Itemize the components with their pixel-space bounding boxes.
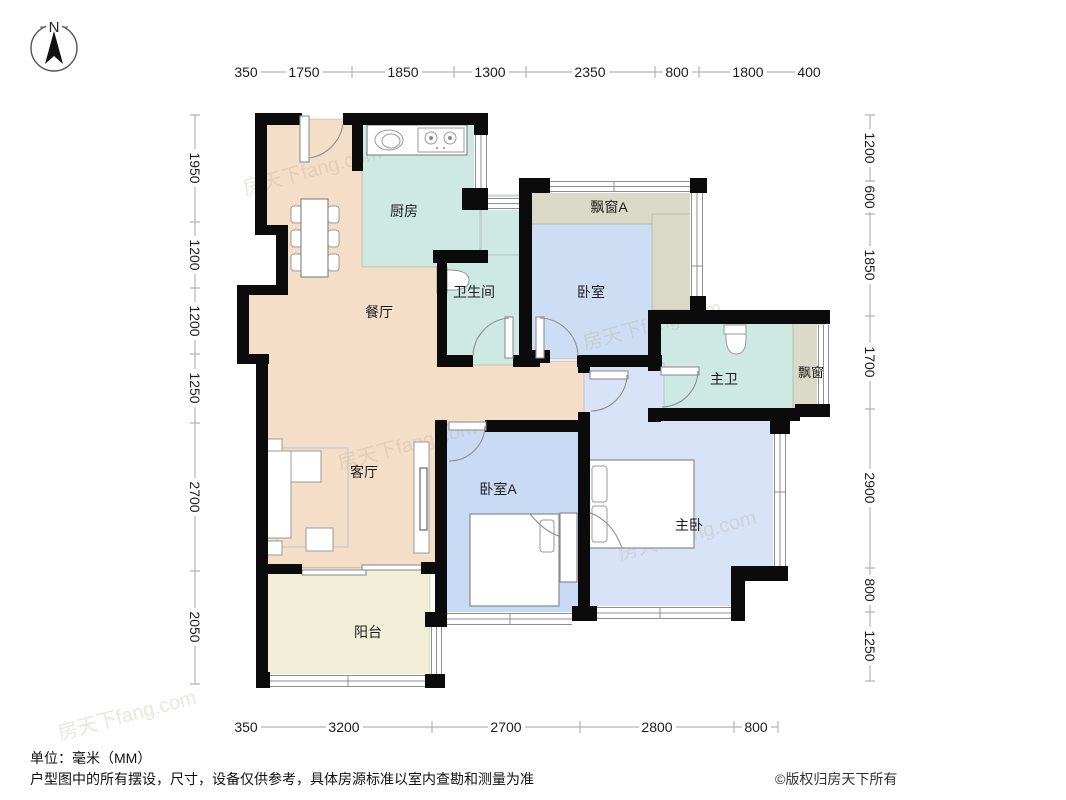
dim-bottom-4: 800 — [744, 719, 768, 735]
bedroom-a-bed — [470, 514, 559, 606]
dim-bottom-3: 2800 — [641, 719, 672, 735]
dim-left-3: 1250 — [187, 372, 203, 403]
label-dining: 餐厅 — [365, 304, 393, 320]
dim-top-1: 1750 — [288, 64, 319, 80]
dim-right-3: 1700 — [862, 346, 878, 377]
dim-right-6: 1250 — [862, 630, 878, 661]
kitchen-counter — [367, 125, 467, 155]
disclaimer: 户型图中的所有摆设，尺寸，设备仅供参考，具体房源标准以室内查勘和测量为准 — [30, 771, 534, 787]
master-bottom-window — [597, 606, 731, 620]
room-balcony-fill — [262, 568, 430, 680]
dim-left-5: 2050 — [187, 611, 203, 642]
baywindow-a-side-window — [690, 193, 704, 298]
compass: N — [31, 18, 77, 71]
label-bedroom-a: 卧室A — [479, 481, 517, 497]
floorplan-page: 房天下fang.com 房天下fang.com 房天下fang.com 房天下f… — [0, 0, 1066, 800]
balcony-right-window — [430, 627, 443, 674]
label-balcony: 阳台 — [354, 624, 382, 640]
dim-top-0: 350 — [234, 64, 258, 80]
dimension-right: 1200 600 1850 1700 2900 800 1250 — [862, 115, 878, 681]
label-bay: 飘窗 — [798, 365, 824, 380]
tv-cabinet — [414, 442, 429, 553]
dim-top-6: 1800 — [732, 64, 763, 80]
dimension-top: 350 1750 1850 1300 2350 800 1800 400 — [232, 64, 824, 80]
dim-left-2: 1200 — [187, 305, 203, 336]
dining-table — [291, 199, 339, 277]
dimension-bottom: 350 3200 2700 2800 800 — [232, 719, 778, 735]
floorplan-canvas: 房天下fang.com 房天下fang.com 房天下fang.com 房天下f… — [0, 0, 1066, 800]
label-bay-a: 飘窗A — [590, 199, 628, 215]
kitchen-window — [474, 135, 488, 188]
dimension-left: 1950 1200 1200 1250 2700 2050 — [187, 115, 203, 684]
label-master-bath: 主卫 — [710, 371, 738, 387]
copyright: ©版权归房天下所有 — [775, 771, 897, 787]
bedroom-a-wardrobe — [560, 513, 577, 582]
dim-right-2: 1850 — [862, 249, 878, 280]
label-master: 主卧 — [675, 517, 703, 533]
label-bathroom: 卫生间 — [453, 284, 495, 300]
watermark-text: 房天下fang.com — [55, 686, 198, 745]
dim-right-4: 2900 — [862, 472, 878, 503]
label-kitchen: 厨房 — [390, 203, 418, 219]
dim-top-7: 400 — [797, 64, 821, 80]
dim-right-5: 800 — [862, 578, 878, 602]
dim-right-0: 1200 — [862, 132, 878, 163]
dim-left-1: 1200 — [187, 239, 203, 270]
unit-note: 单位：毫米（MM） — [30, 750, 151, 766]
dim-right-1: 600 — [862, 185, 878, 209]
dim-bottom-1: 3200 — [328, 719, 359, 735]
master-right-window — [773, 434, 787, 566]
dim-bottom-0: 350 — [234, 719, 258, 735]
footer: 单位：毫米（MM） 户型图中的所有摆设，尺寸，设备仅供参考，具体房源标准以室内查… — [30, 750, 897, 787]
master-bed — [588, 460, 694, 548]
dim-top-2: 1850 — [387, 64, 418, 80]
label-bedroom: 卧室 — [577, 284, 605, 300]
label-living: 客厅 — [350, 464, 378, 480]
bedroom-a-bottom-window — [447, 612, 572, 626]
room-baywindow-a-side-fill — [652, 214, 696, 310]
bathroom-window — [488, 197, 519, 210]
dim-top-5: 800 — [665, 64, 689, 80]
dim-left-0: 1950 — [187, 152, 203, 183]
baywindow-a-top-window — [550, 180, 690, 193]
dim-top-4: 2350 — [574, 64, 605, 80]
balcony-bottom-window — [270, 674, 425, 688]
dim-top-3: 1300 — [474, 64, 505, 80]
dim-bottom-2: 2700 — [490, 719, 521, 735]
dim-left-4: 2700 — [187, 481, 203, 512]
